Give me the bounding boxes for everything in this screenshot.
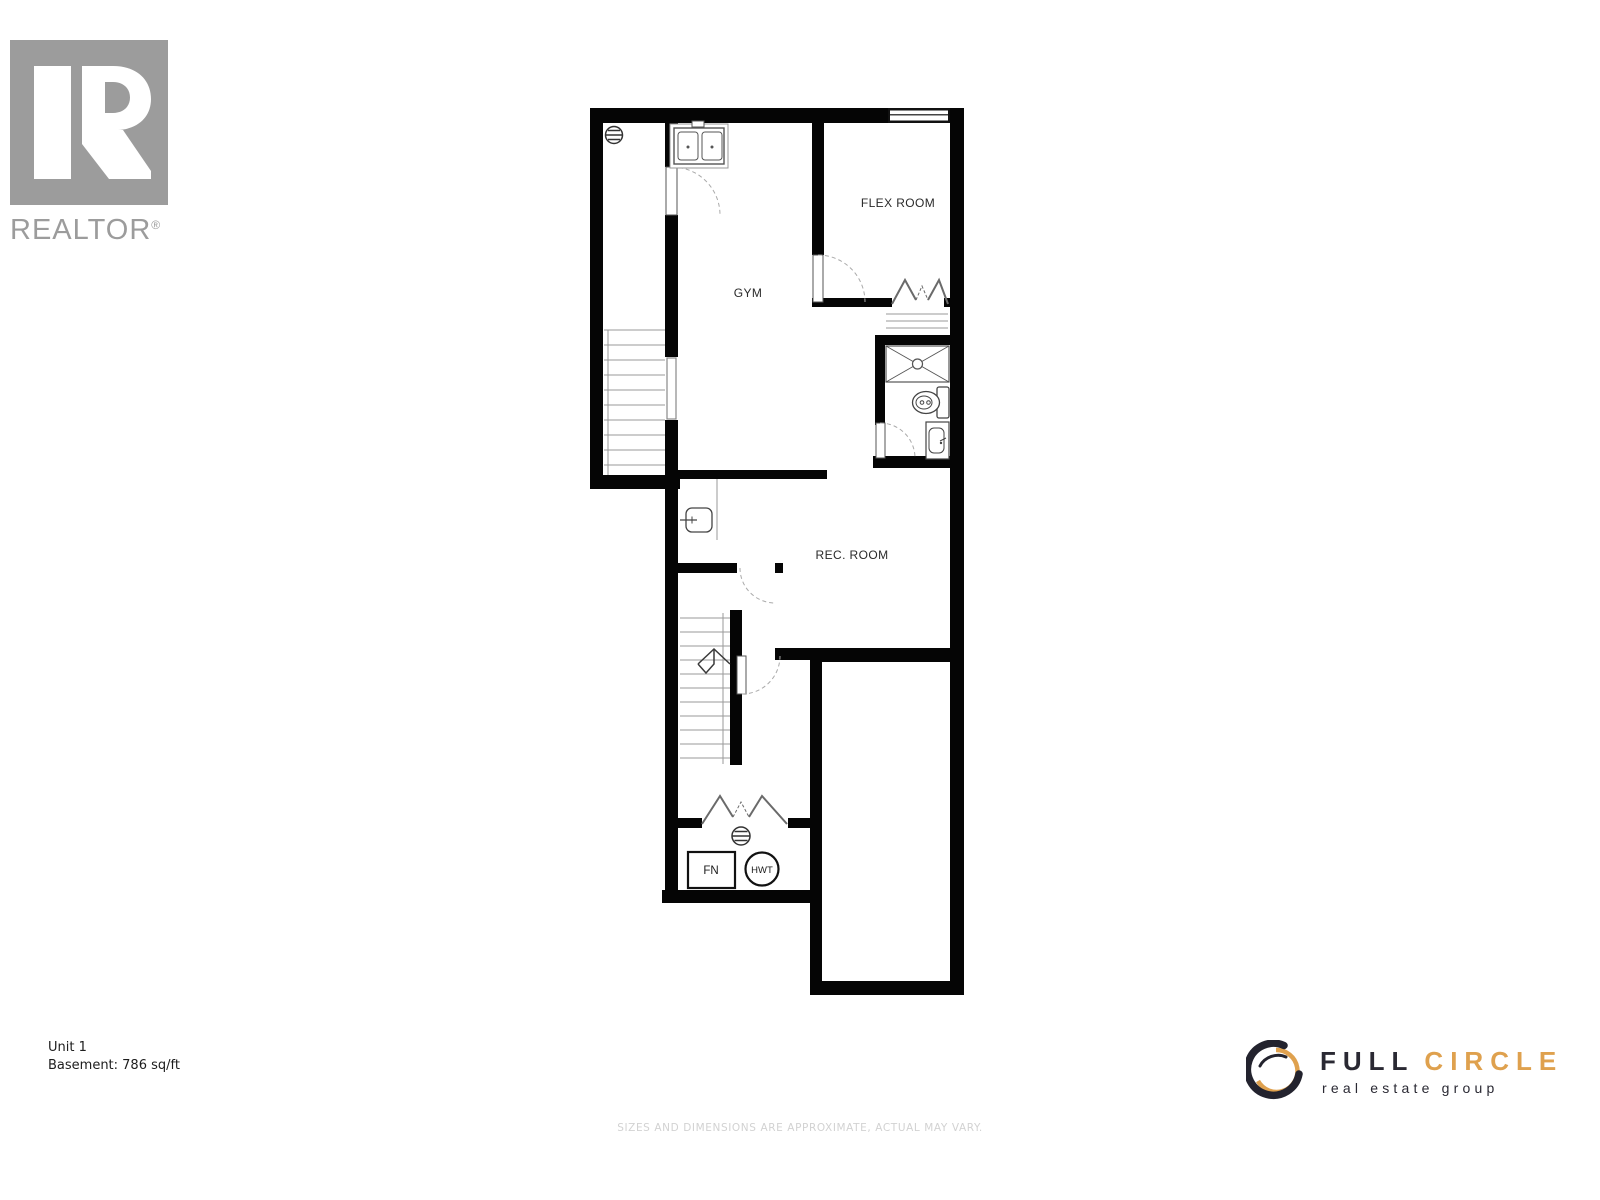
shower-icon (886, 346, 949, 382)
vanity-sink-icon (926, 422, 949, 459)
equip-label-hwt: HWT (751, 865, 773, 876)
room-label-gym: GYM (734, 286, 763, 300)
upper-stairs (604, 330, 665, 475)
double-sink-icon (670, 121, 728, 168)
floorplan-drawing: GYM FLEX ROOM REC. ROOM FN HWT (0, 0, 1600, 1200)
bifold-closet-doors-flex (892, 280, 948, 304)
unit-label: Unit 1 (48, 1039, 180, 1057)
full-circle-tagline: real estate group (1320, 1080, 1563, 1096)
room-label-rec-room: REC. ROOM (816, 548, 889, 562)
full-circle-mark-icon (1246, 1040, 1306, 1100)
bifold-closet-doors-mech (702, 796, 787, 824)
toilet-icon (913, 387, 950, 418)
equip-label-furnace: FN (703, 865, 718, 877)
disclaimer-text: SIZES AND DIMENSIONS ARE APPROXIMATE, AC… (0, 1122, 1600, 1134)
full-circle-text: FULLCIRCLE real estate group (1320, 1040, 1563, 1096)
floor-drain-icon (606, 127, 623, 144)
lower-stairs (680, 613, 730, 764)
full-circle-logo: FULLCIRCLE real estate group (1246, 1040, 1563, 1100)
window (888, 107, 950, 124)
bar-sink-icon (680, 479, 717, 540)
unit-info: Unit 1 Basement: 786 sq/ft (48, 1039, 180, 1075)
area-label: Basement: 786 sq/ft (48, 1057, 180, 1075)
closet-shelves (886, 314, 948, 328)
doors (666, 167, 915, 694)
stairs-up-arrow-icon (698, 649, 730, 673)
full-circle-word1: FULL (1320, 1046, 1414, 1076)
floorplan-page: REALTOR® (0, 0, 1600, 1200)
room-label-flex-room: FLEX ROOM (861, 196, 935, 210)
floor-drain-icon (732, 827, 750, 845)
full-circle-word2: CIRCLE (1424, 1046, 1563, 1076)
stair-railing (667, 358, 676, 419)
